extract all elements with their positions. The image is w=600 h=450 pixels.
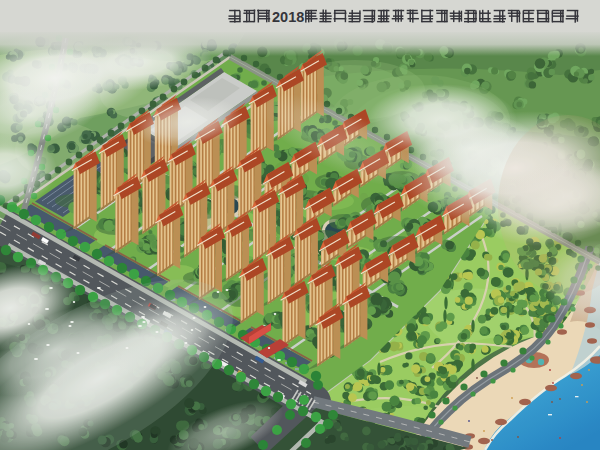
svg-text:2018: 2018 [272,9,304,25]
